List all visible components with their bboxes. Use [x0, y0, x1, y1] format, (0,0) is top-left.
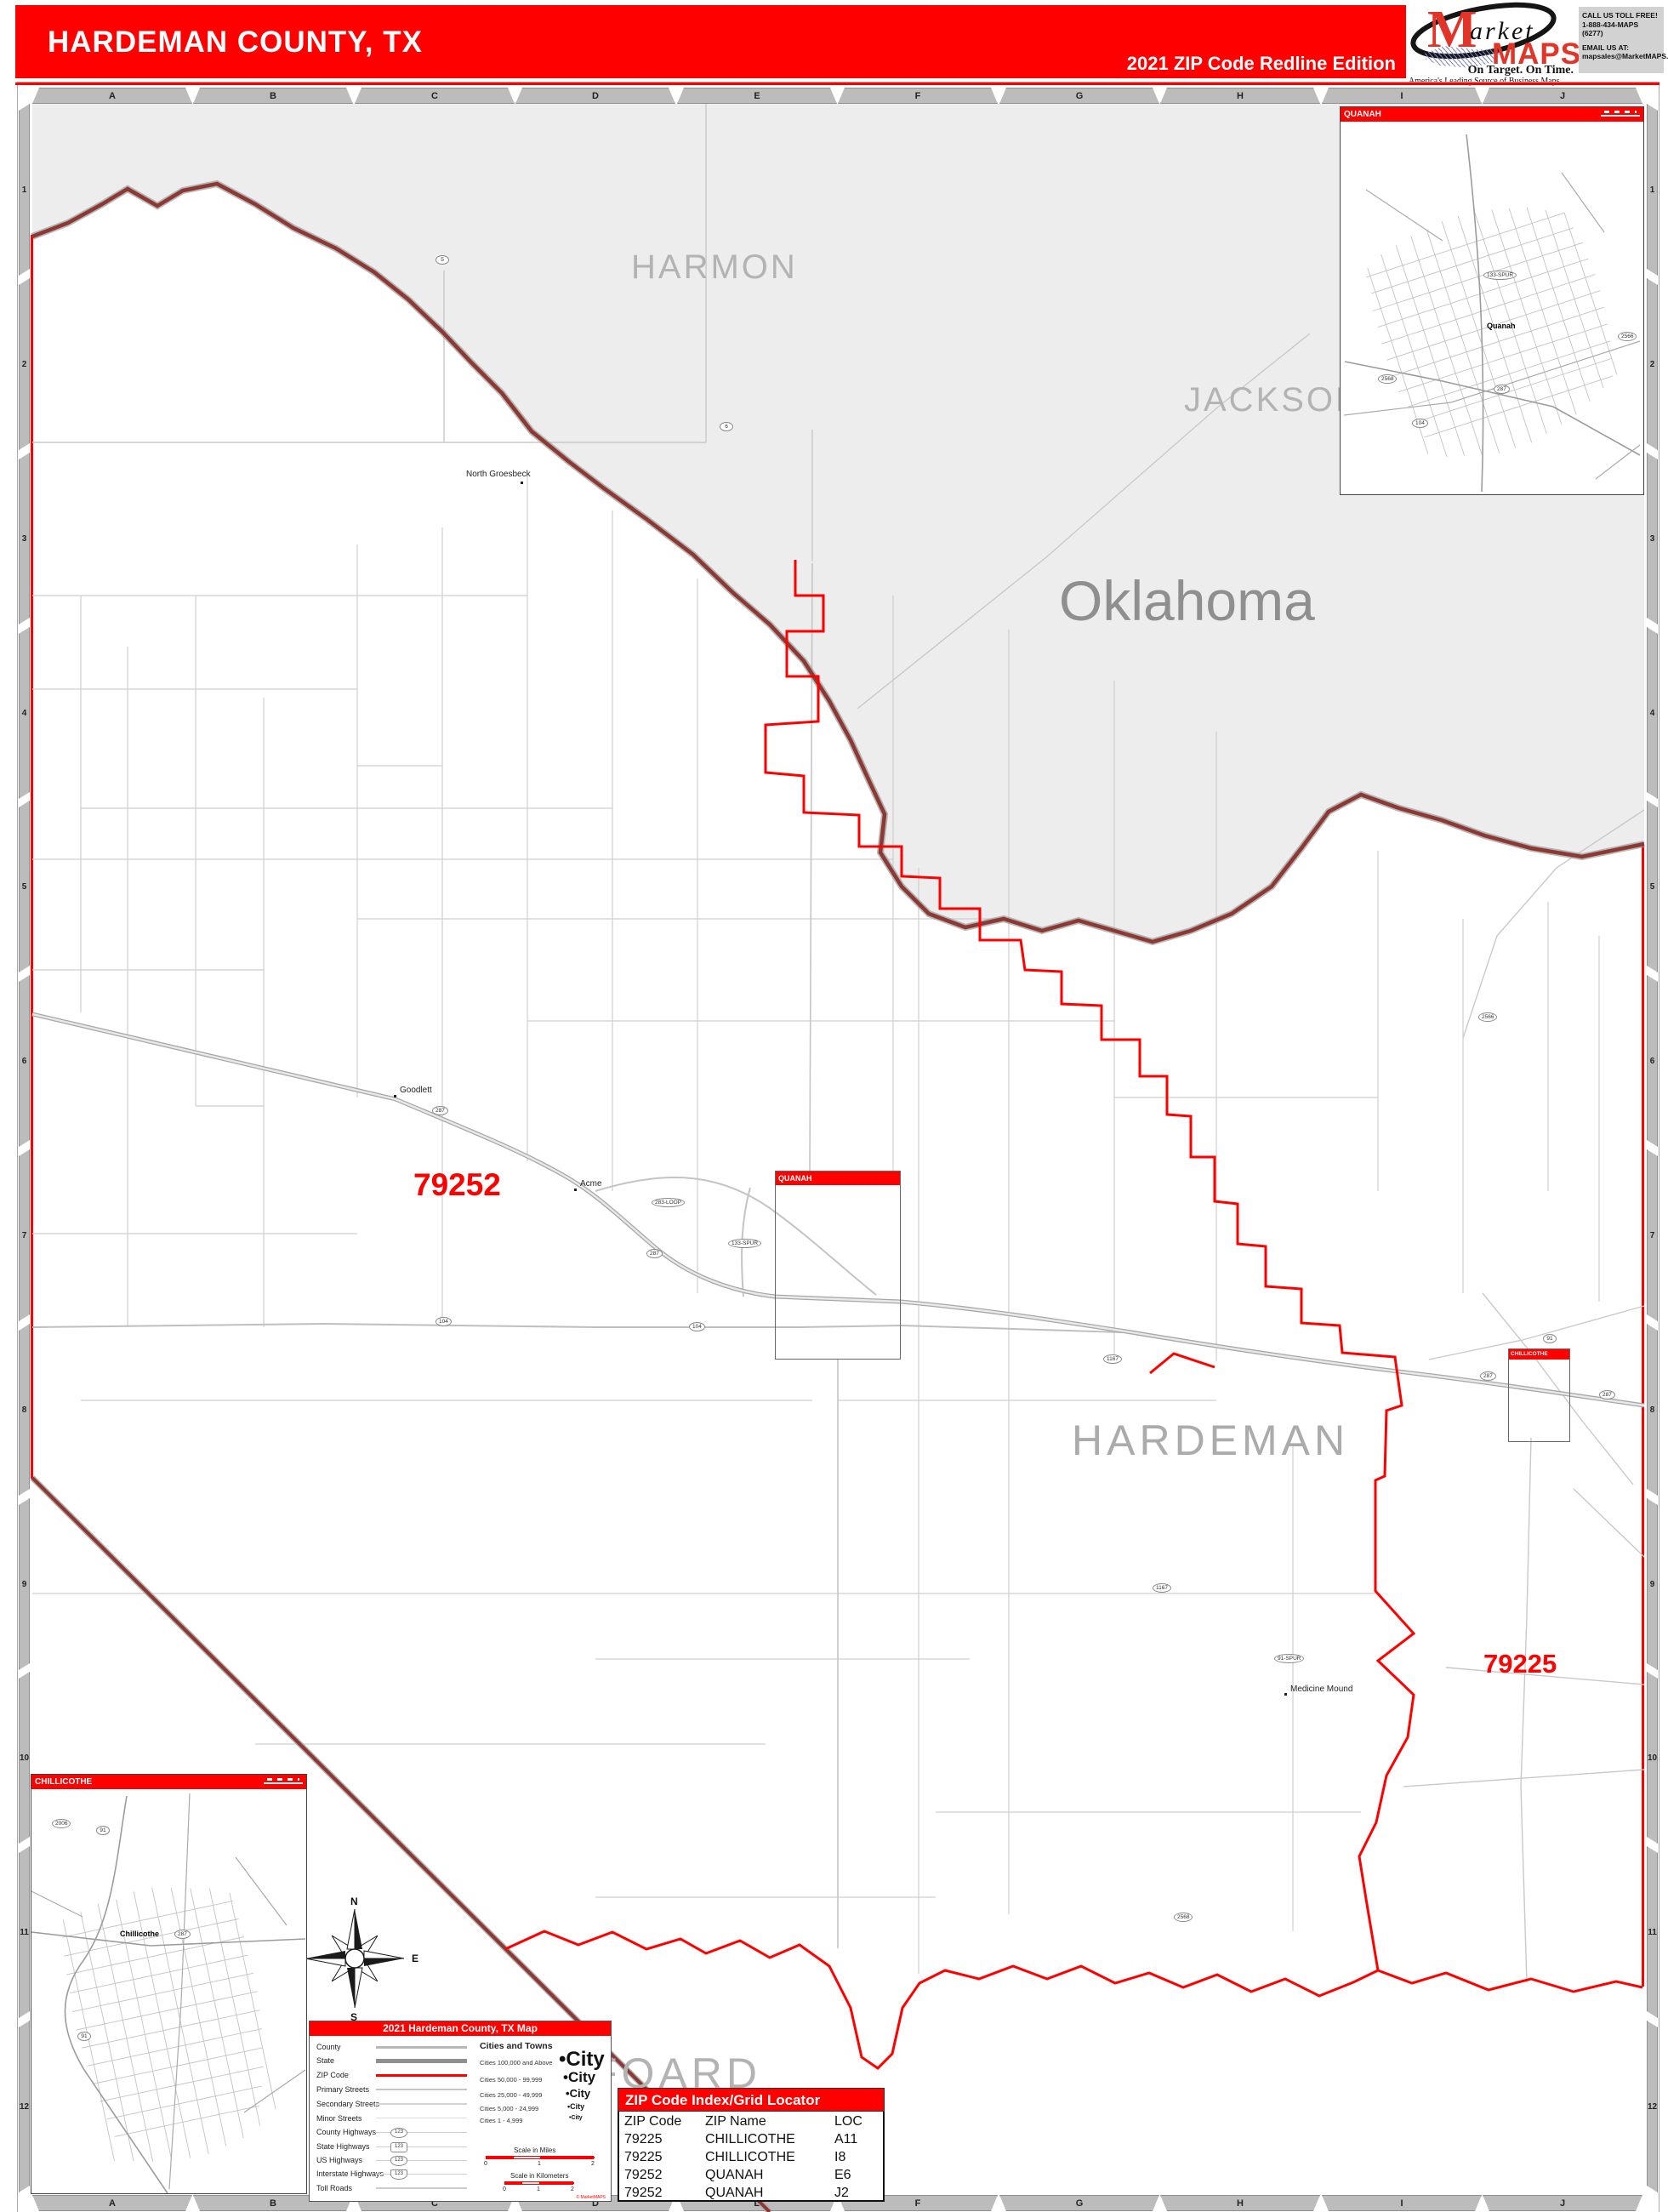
quanah-inset-shield-104: 104	[1412, 419, 1428, 428]
quanah-inset-title: QUANAH	[1344, 110, 1381, 119]
legend-city-sample-2: •City	[563, 2069, 595, 2086]
shield-133-spur: 133-SPUR	[728, 1239, 761, 1248]
chillicothe-inset-shield-287: 287	[174, 1930, 191, 1939]
chillicothe-inset-map	[31, 1789, 306, 2193]
legend-city-text-5: City	[571, 2115, 582, 2121]
county-label-hardeman: HARDEMAN	[1072, 1416, 1349, 1465]
town-dot-north-groesbeck	[521, 482, 523, 484]
legend-item-us-hwy: US Highways	[316, 2156, 362, 2164]
quanah-inset-shield-133spur: 133-SPUR	[1483, 271, 1517, 280]
row4-zip: 79252	[624, 2184, 705, 2202]
scale-miles-title: Scale in Miles	[514, 2146, 555, 2154]
legend-city-sample-1: •City	[559, 2048, 605, 2072]
shield-1167-1: 1167	[1103, 1354, 1122, 1364]
quanah-inset: QUANAH Quanah 133-SPUR 287 2568 104 2566	[1340, 106, 1644, 495]
shield-91: 91	[1543, 1334, 1557, 1343]
shield-104-1: 104	[436, 1317, 452, 1326]
quanah-extent-box-title: QUANAH	[776, 1172, 900, 1185]
legend-box: 2021 Hardeman County, TX Map County Stat…	[309, 2021, 612, 2202]
legend-copyright: © MarketMAPS	[576, 2195, 606, 2200]
zip-index-table: ZIP Code Index/Grid Locator ZIP Code ZIP…	[618, 2088, 885, 2202]
shield-ok-6: 6	[720, 422, 733, 431]
legend-title: 2021 Hardeman County, TX Map	[310, 2021, 611, 2036]
table-row: 79225 CHILLICOTHE A11	[624, 2130, 883, 2148]
legend-city-text-2: City	[568, 2069, 595, 2085]
county-label-jackson: JACKSON	[1184, 381, 1363, 419]
scale-miles-0: 0	[484, 2161, 487, 2167]
legend-sample-primary	[376, 2089, 467, 2090]
shield-1167-2: 1167	[1153, 1583, 1171, 1593]
zip-index-header-row: ZIP Code ZIP Name LOC	[624, 2112, 883, 2130]
town-dot-goodlett	[394, 1095, 396, 1097]
shield-ok-5: 5	[436, 255, 449, 265]
table-row: 79252 QUANAH E6	[624, 2166, 883, 2184]
map-page: HARDEMAN COUNTY, TX 2021 ZIP Code Redlin…	[0, 0, 1668, 2212]
scale-km-seg1	[505, 2182, 522, 2184]
legend-item-county: County	[316, 2043, 341, 2051]
quanah-inset-shield-287: 287	[1494, 385, 1510, 394]
shield-us287-2: 287	[646, 1249, 663, 1258]
legend-shield-us-hwy: 123	[390, 2156, 407, 2166]
legend-city-range-4: Cities 5,000 - 24,999	[480, 2105, 538, 2112]
row2-loc: I8	[834, 2148, 881, 2166]
legend-city-text-4: City	[570, 2102, 584, 2111]
quanah-inset-scale-icon	[1601, 111, 1640, 118]
legend-item-minor: Minor Streets	[316, 2114, 362, 2123]
zip-index-col-zip: ZIP Code	[624, 2112, 705, 2130]
town-label-acme: Acme	[580, 1179, 602, 1189]
quanah-inset-header: QUANAH	[1341, 107, 1643, 122]
table-row: 79225 CHILLICOTHE I8	[624, 2148, 883, 2166]
town-dot-acme	[574, 1189, 577, 1191]
legend-item-toll: Toll Roads	[316, 2184, 352, 2192]
legend-sample-toll	[376, 2187, 467, 2189]
legend-city-range-5: Cities 1 - 4,999	[480, 2117, 522, 2124]
legend-city-sample-3: •City	[566, 2087, 590, 2100]
legend-item-primary: Primary Streets	[316, 2085, 369, 2094]
legend-item-interstate: Interstate Highways	[316, 2169, 384, 2178]
legend-shield-county-hwy: 123	[390, 2128, 407, 2138]
town-label-north-groesbeck: North Groesbeck	[466, 470, 531, 479]
legend-sample-county	[376, 2046, 467, 2049]
legend-sample-state	[376, 2059, 467, 2063]
quanah-city-label: Quanah	[1487, 322, 1516, 330]
legend-city-range-1: Cities 100,000 and Above	[480, 2059, 552, 2067]
zip-index-title: ZIP Code Index/Grid Locator	[618, 2088, 885, 2112]
quanah-inset-map	[1341, 122, 1643, 494]
quanah-extent-box: QUANAH	[775, 1171, 901, 1360]
legend-item-zip: ZIP Code	[316, 2071, 349, 2079]
legend-item-county-hwy: County Highways	[316, 2128, 376, 2136]
shield-us287-1: 287	[432, 1106, 448, 1115]
legend-cities-title: Cities and Towns	[480, 2041, 553, 2051]
chillicothe-inset-shield-91a: 91	[96, 1826, 110, 1835]
legend-item-secondary: Secondary Streets	[316, 2100, 379, 2108]
zip-boundary-jog	[1150, 1354, 1215, 1373]
legend-item-state-hwy: State Highways	[316, 2142, 370, 2151]
row1-loc: A11	[834, 2130, 881, 2148]
zip-index-body: ZIP Code ZIP Name LOC 79225 CHILLICOTHE …	[618, 2112, 885, 2202]
shield-104-2: 104	[689, 1322, 705, 1331]
legend-item-state: State	[316, 2056, 334, 2065]
row2-zip: 79225	[624, 2148, 705, 2166]
chillicothe-city-label: Chillicothe	[120, 1930, 159, 1938]
chillicothe-inset: CHILLICOTHE Chillicothe 2006 91 287 91	[31, 1774, 307, 2194]
row3-name: QUANAH	[705, 2166, 834, 2184]
route-104	[32, 1324, 1123, 1332]
town-label-medicine-mound: Medicine Mound	[1290, 1685, 1352, 1694]
scale-miles-2: 2	[591, 2161, 595, 2167]
legend-city-range-3: Cities 25,000 - 49,999	[480, 2091, 542, 2099]
shield-283-loop: 283-LOOP	[652, 1198, 685, 1207]
compass-rose-icon	[305, 1909, 404, 2008]
scale-km-title: Scale in Kilometers	[510, 2172, 568, 2180]
chillicothe-extent-box: CHILLICOTHE	[1508, 1348, 1570, 1442]
compass-n-label: N	[350, 1896, 358, 1907]
row1-name: CHILLICOTHE	[705, 2130, 834, 2148]
county-label-harmon: HARMON	[631, 248, 798, 287]
table-row: 79252 QUANAH J2	[624, 2184, 883, 2202]
scale-miles-seg2	[540, 2157, 595, 2158]
row3-zip: 79252	[624, 2166, 705, 2184]
chillicothe-inset-shield-91b: 91	[77, 2032, 91, 2041]
legend-city-sample-4: •City	[567, 2102, 584, 2111]
legend-sample-secondary	[376, 2103, 467, 2105]
shield-us287-3: 287	[1480, 1371, 1496, 1381]
legend-sample-minor	[376, 2118, 467, 2118]
scale-miles-bar	[486, 2156, 594, 2159]
state-label-oklahoma: Oklahoma	[1059, 568, 1315, 633]
row4-name: QUANAH	[705, 2184, 834, 2202]
scale-km-seg2	[539, 2182, 574, 2184]
row2-name: CHILLICOTHE	[705, 2148, 834, 2166]
town-label-goodlett: Goodlett	[400, 1086, 432, 1095]
zip-label-79225: 79225	[1483, 1649, 1557, 1679]
scale-km-0: 0	[503, 2186, 506, 2192]
scale-miles-seg1	[487, 2157, 514, 2158]
zip-index-col-name: ZIP Name	[705, 2112, 834, 2130]
zip-boundary-south	[505, 1931, 1642, 2068]
town-dot-medicine-mound	[1284, 1693, 1287, 1696]
legend-sample-zip	[376, 2074, 467, 2077]
scale-km-2: 2	[571, 2186, 574, 2192]
row1-zip: 79225	[624, 2130, 705, 2148]
row4-loc: J2	[834, 2184, 881, 2202]
chillicothe-extent-box-title: CHILLICOTHE	[1509, 1349, 1569, 1360]
legend-city-text-1: City	[566, 2048, 604, 2071]
legend-body: County State ZIP Code Primary Streets Se…	[310, 2036, 611, 2202]
scale-km-bar	[504, 2181, 573, 2185]
legend-shield-state-hwy: 123	[390, 2142, 407, 2152]
row3-loc: E6	[834, 2166, 881, 2184]
scale-km-1: 1	[537, 2186, 540, 2192]
zip-label-79252: 79252	[413, 1167, 501, 1203]
compass-e-label: E	[412, 1953, 418, 1964]
scale-miles-1: 1	[538, 2161, 541, 2167]
shield-us287-4: 287	[1599, 1390, 1615, 1400]
legend-city-text-3: City	[570, 2087, 591, 2100]
chillicothe-inset-title: CHILLICOTHE	[35, 1777, 92, 1787]
chillicothe-inset-scale-icon	[264, 1778, 303, 1786]
chillicothe-inset-header: CHILLICOTHE	[31, 1775, 306, 1789]
legend-city-sample-5: •City	[569, 2115, 583, 2121]
legend-shield-interstate: 123	[390, 2169, 407, 2180]
zip-index-col-loc: LOC	[834, 2112, 881, 2130]
legend-city-range-2: Cities 50,000 - 99,999	[480, 2076, 542, 2084]
